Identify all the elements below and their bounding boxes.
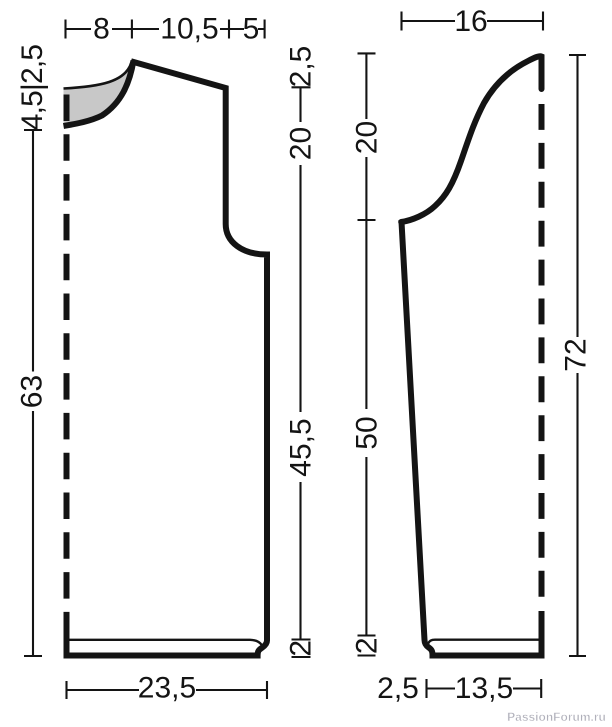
svg-text:PassionForum.ru: PassionForum.ru [507,710,606,724]
svg-text:2: 2 [284,640,317,657]
svg-text:72: 72 [559,338,592,371]
svg-text:2,5: 2,5 [284,46,317,88]
svg-text:8: 8 [93,12,110,45]
svg-text:23,5: 23,5 [138,671,196,704]
svg-text:50: 50 [350,416,383,449]
svg-text:13,5: 13,5 [455,672,513,705]
svg-text:2: 2 [350,637,383,654]
svg-text:20: 20 [350,121,383,154]
svg-text:16: 16 [454,5,487,38]
svg-text:2,5: 2,5 [377,672,419,705]
svg-text:20: 20 [284,127,317,160]
svg-text:4,5|2,5: 4,5|2,5 [16,45,49,131]
svg-text:5: 5 [243,12,260,45]
svg-text:45,5: 45,5 [284,418,317,476]
svg-text:63: 63 [15,375,48,408]
svg-text:10,5: 10,5 [160,12,218,45]
